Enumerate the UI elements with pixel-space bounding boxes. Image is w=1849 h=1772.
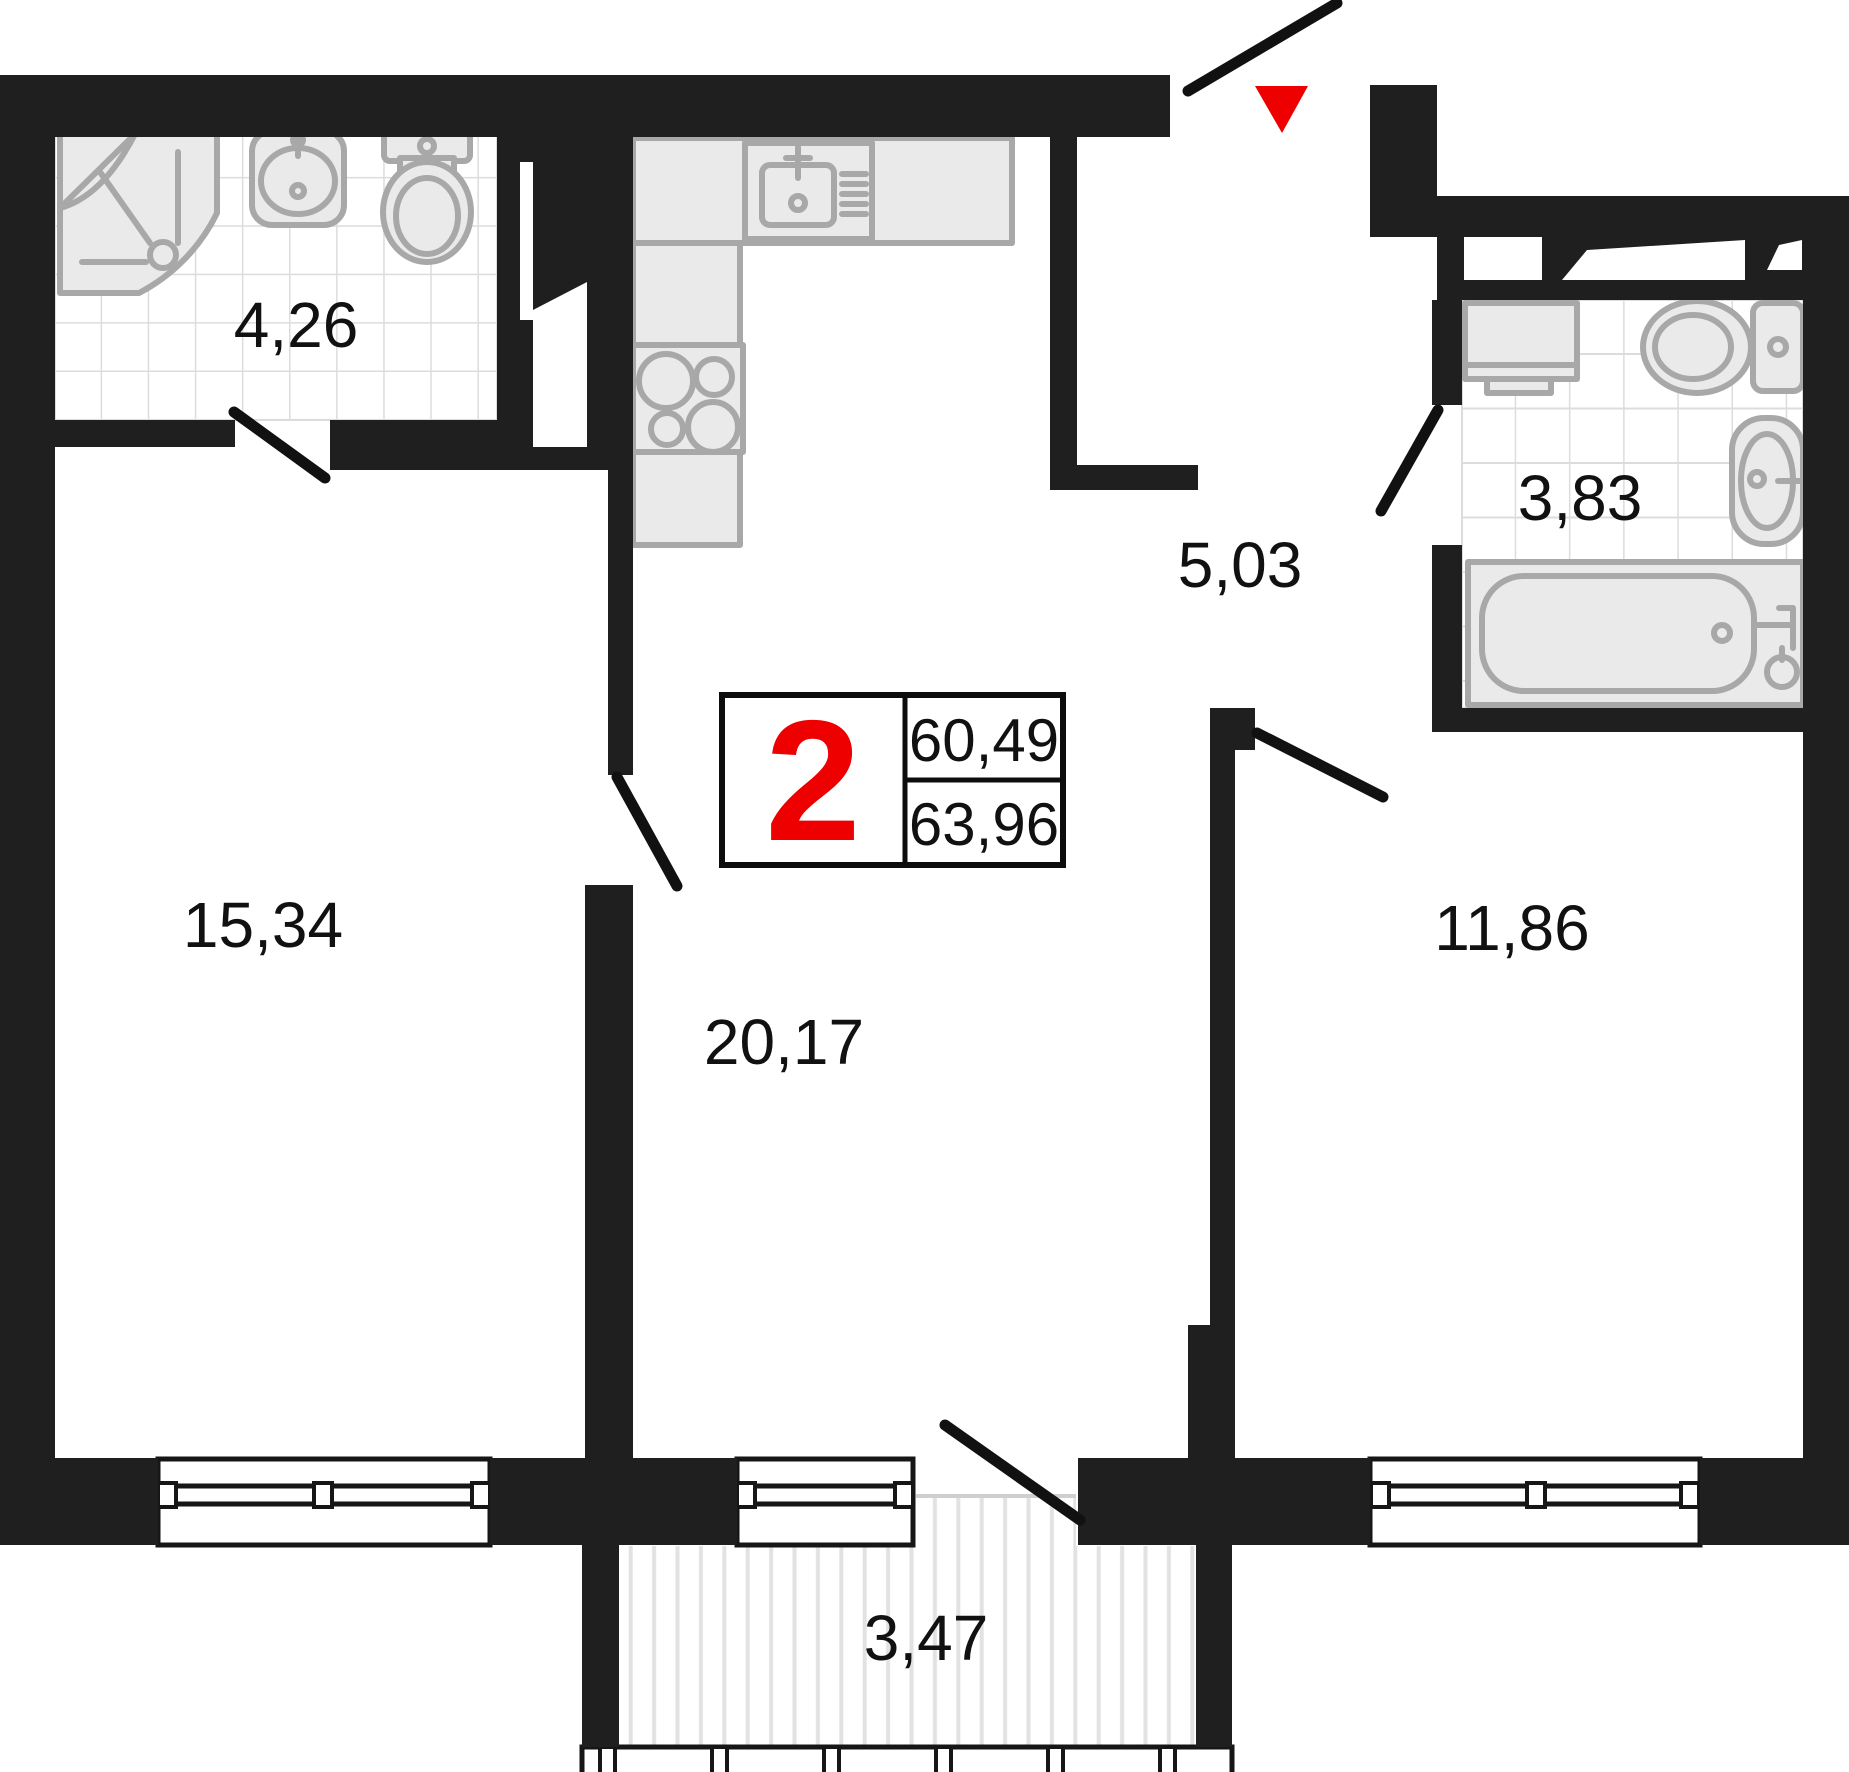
washbasin-icon (252, 131, 344, 225)
bathroom-large-door-swing (1381, 410, 1438, 511)
info-box: 2 60,49 63,96 (722, 685, 1063, 877)
area-label-bedroom-right: 11,86 (1434, 892, 1589, 964)
window-bedroom-right (1370, 1459, 1700, 1545)
balcony-glazing (582, 1747, 1232, 1772)
living-area-value: 60,49 (909, 707, 1059, 774)
bedroom-right-door-swing (1257, 733, 1383, 797)
toilet-icon (383, 131, 471, 262)
window-living (737, 1459, 913, 1545)
bedroom-left-door-swing (617, 777, 677, 886)
cooktop-icon (633, 345, 743, 452)
total-area-value: 63,96 (909, 791, 1059, 858)
area-label-hallway: 5,03 (1178, 529, 1303, 601)
toilet-icon (1643, 301, 1803, 393)
kitchen-sink-icon (745, 143, 872, 239)
area-label-balcony: 3,47 (864, 1602, 989, 1674)
floor-plan: 2 60,49 63,96 4,26 15,34 20,17 5,03 3,83… (0, 0, 1849, 1772)
rooms-count: 2 (765, 685, 861, 877)
bathroom-small-door-swing (234, 412, 325, 478)
window-bedroom-left (158, 1459, 490, 1545)
area-label-living-kitchen: 20,17 (704, 1006, 864, 1078)
area-label-bedroom-left: 15,34 (183, 889, 343, 961)
entrance-door-swing (1188, 3, 1337, 91)
bathtub-icon (1468, 562, 1803, 705)
area-label-bathroom-large: 3,83 (1518, 462, 1643, 534)
washbasin-icon (1732, 418, 1803, 544)
entrance-marker-icon (1255, 86, 1308, 133)
area-label-bathroom-small: 4,26 (234, 289, 359, 361)
washing-machine-icon (1465, 303, 1577, 393)
